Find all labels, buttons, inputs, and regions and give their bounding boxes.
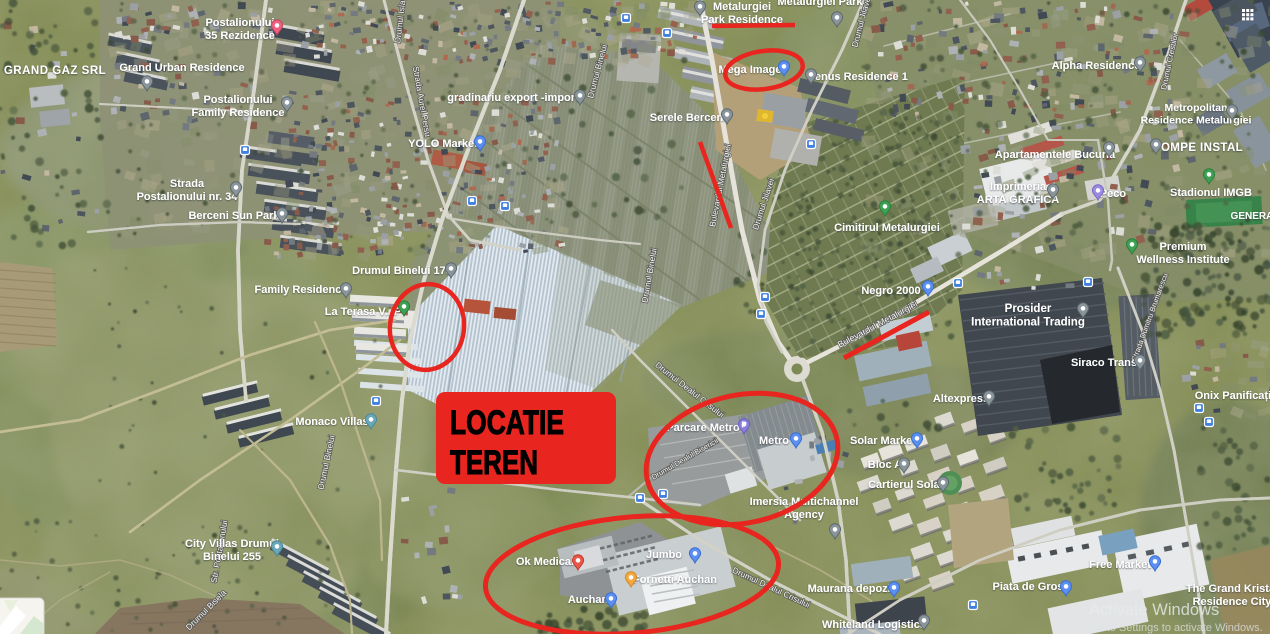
svg-text:Apartamentele Bucuria: Apartamentele Bucuria: [995, 149, 1116, 161]
svg-text:P: P: [741, 421, 747, 430]
svg-text:Piata de Gros: Piata de Gros: [993, 581, 1064, 593]
svg-text:Parcare Metro: Parcare Metro: [666, 422, 740, 434]
svg-text:LOCATIE: LOCATIE: [450, 404, 564, 442]
svg-text:gradinariu export -import: gradinariu export -import: [447, 92, 579, 104]
svg-text:Alpha Residence: Alpha Residence: [1052, 60, 1141, 72]
svg-text:Venus Residence 1: Venus Residence 1: [808, 71, 908, 83]
svg-text:Family Residence: Family Residence: [255, 284, 348, 296]
svg-text:GRAND GAZ SRL: GRAND GAZ SRL: [4, 65, 106, 77]
svg-text:Altexpress: Altexpress: [933, 393, 989, 405]
svg-text:TEREN: TEREN: [450, 444, 538, 482]
svg-text:Grand Urban Residence: Grand Urban Residence: [119, 62, 244, 74]
svg-text:Stadionul IMGB: Stadionul IMGB: [1170, 187, 1252, 199]
svg-text:Activate Windows: Activate Windows: [1089, 601, 1219, 619]
svg-text:Siraco Trans: Siraco Trans: [1071, 357, 1137, 369]
svg-text:Go to Settings to activate Win: Go to Settings to activate Windows.: [1089, 622, 1263, 634]
svg-text:Jumbo: Jumbo: [646, 549, 682, 561]
svg-text:PostalionuluiFamily Residence: PostalionuluiFamily Residence: [192, 94, 285, 119]
svg-text:Drumul Binelui 178: Drumul Binelui 178: [352, 265, 452, 277]
svg-text:Metro: Metro: [759, 435, 789, 447]
svg-text:YOLO Market: YOLO Market: [408, 138, 478, 150]
svg-text:Metalurgiei Park: Metalurgiei Park: [778, 0, 864, 8]
svg-text:GENERAL: GENERAL: [1231, 211, 1270, 222]
svg-text:Solar Market: Solar Market: [850, 435, 916, 447]
svg-text:Fornetti Auchan: Fornetti Auchan: [633, 574, 717, 586]
svg-text:Postalionului35 Rezidence: Postalionului35 Rezidence: [205, 17, 275, 42]
svg-text:Bloc A: Bloc A: [868, 459, 902, 471]
svg-text:Free Market: Free Market: [1089, 559, 1151, 571]
svg-text:POMPE INSTAL: POMPE INSTAL: [1153, 142, 1243, 154]
svg-text:Ok Medical: Ok Medical: [516, 556, 574, 568]
svg-text:Cartierul Solar: Cartierul Solar: [868, 479, 945, 491]
svg-text:Maurana depozit: Maurana depozit: [808, 583, 895, 595]
svg-text:Negro 2000: Negro 2000: [861, 285, 920, 297]
svg-text:Serele Berceni: Serele Berceni: [650, 112, 726, 124]
svg-text:MetalurgieiPark Residence: MetalurgieiPark Residence: [701, 1, 783, 26]
svg-text:Monaco Villas: Monaco Villas: [295, 416, 368, 428]
svg-text:Berceni Sun Park: Berceni Sun Park: [188, 210, 280, 222]
svg-text:Cimitirul Metalurgiei: Cimitirul Metalurgiei: [834, 222, 940, 234]
svg-text:Whiteland Logistics: Whiteland Logistics: [822, 619, 926, 631]
svg-text:Auchan: Auchan: [568, 594, 609, 606]
svg-text:Onix Panificație: Onix Panificație: [1195, 390, 1270, 402]
